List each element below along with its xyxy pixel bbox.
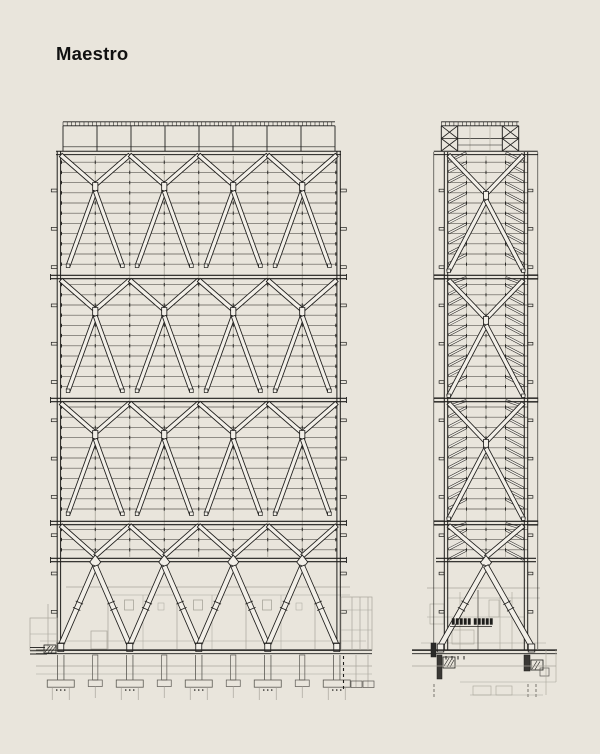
front-elevation-lattice (51, 151, 347, 650)
elevation-drawings (0, 0, 600, 754)
drawing-sheet: Maestro (0, 0, 600, 754)
front-roof-rail (63, 122, 335, 151)
front-foundations (36, 650, 372, 700)
side-roof-box (441, 122, 518, 151)
side-elevation-lattice (434, 151, 538, 650)
